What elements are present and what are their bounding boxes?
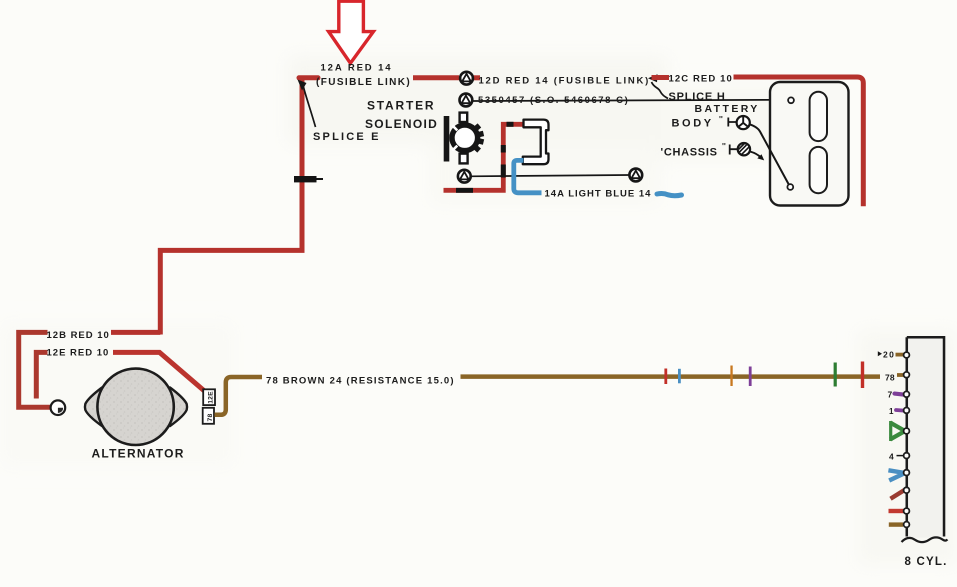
- svg-text:12E: 12E: [208, 391, 215, 404]
- svg-text:'': '': [719, 115, 723, 124]
- svg-text:BATTERY: BATTERY: [695, 103, 760, 115]
- svg-text:'': '': [722, 142, 726, 151]
- svg-text:12C RED 10: 12C RED 10: [669, 74, 733, 85]
- svg-text:12D RED 14 (FUSIBLE LINK): 12D RED 14 (FUSIBLE LINK): [479, 76, 651, 87]
- svg-text:'CHASSIS: 'CHASSIS: [661, 147, 718, 159]
- svg-text:SOLENOID: SOLENOID: [365, 117, 438, 131]
- svg-text:BODY: BODY: [672, 118, 714, 130]
- svg-text:78: 78: [885, 373, 895, 383]
- svg-text:7: 7: [888, 390, 893, 400]
- svg-text:12E RED 10: 12E RED 10: [47, 348, 110, 359]
- svg-text:12A RED 14: 12A RED 14: [321, 63, 393, 74]
- svg-text:5350457 (S.O. 5460678 C): 5350457 (S.O. 5460678 C): [478, 95, 629, 106]
- svg-text:STARTER: STARTER: [367, 99, 435, 113]
- svg-text:78: 78: [207, 414, 214, 422]
- svg-text:14A LIGHT BLUE 14: 14A LIGHT BLUE 14: [545, 189, 652, 200]
- svg-text:ALTERNATOR: ALTERNATOR: [92, 447, 185, 461]
- svg-text:SPLICE E: SPLICE E: [313, 131, 381, 143]
- svg-text:8 CYL.: 8 CYL.: [905, 556, 948, 568]
- svg-text:12B RED 10: 12B RED 10: [47, 330, 110, 341]
- svg-text:1: 1: [889, 407, 894, 416]
- svg-text:4: 4: [889, 452, 894, 462]
- svg-text:SPLICE H: SPLICE H: [669, 91, 726, 103]
- svg-text:78 BROWN 24 (RESISTANCE 15.0): 78 BROWN 24 (RESISTANCE 15.0): [266, 376, 455, 387]
- svg-text:(FUSIBLE LINK): (FUSIBLE LINK): [316, 77, 411, 88]
- svg-text:20: 20: [883, 350, 895, 360]
